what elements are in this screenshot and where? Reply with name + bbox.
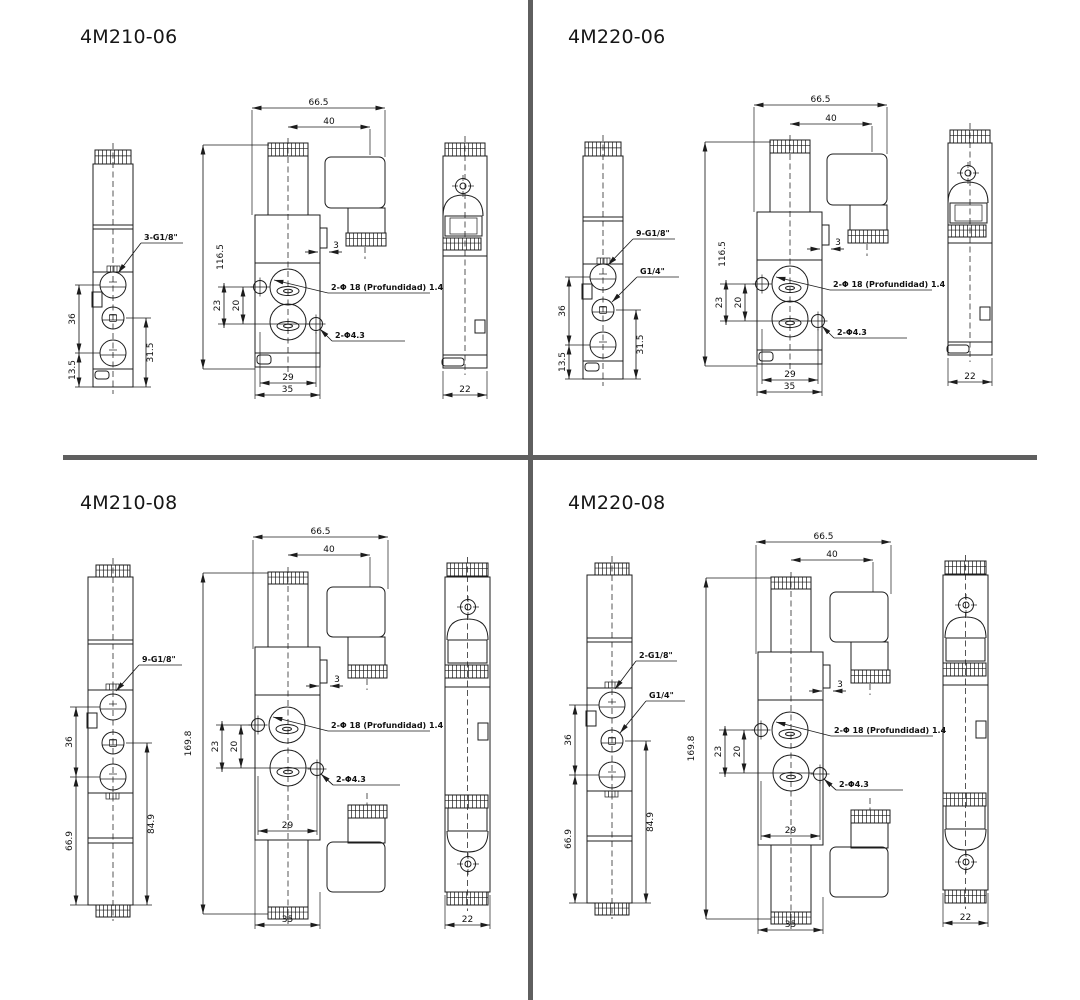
dim-bottom-offset: 66.9 (65, 831, 75, 851)
dim-lower-span: 84.9 (147, 814, 157, 834)
valve-dimensions-sheet: 4M210-06 4M220-06 4M210-08 4M220-08 3613… (0, 0, 1080, 1000)
port-label-2: G1/4" (640, 267, 665, 276)
dim-body-width: 35 (282, 385, 293, 395)
label-mount-holes: 2-Φ4.3 (837, 328, 867, 337)
dim-port-spacing-outer: 23 (213, 300, 223, 311)
dim-body-width: 35 (282, 915, 293, 925)
side-view-4m210-08: 3666.984.99-G1/8" (65, 558, 182, 921)
dim-port-span: 36 (65, 736, 75, 748)
dim-port-span: 36 (68, 313, 78, 325)
dim-mount-hole-span: 29 (282, 373, 294, 383)
dim-pilot-tab: 3 (334, 675, 340, 685)
port-label-1: 2-G1/8" (639, 651, 673, 660)
dim-pilot-tab: 3 (835, 238, 841, 248)
front-view-4m210-06: 66.540323202-Φ 18 (Profundidad) 1.42-Φ4.… (203, 98, 444, 399)
dim-height: 169.8 (687, 735, 697, 761)
port-label-1: 3-G1/8" (144, 233, 178, 242)
dim-lower-span: 31.5 (636, 334, 646, 354)
label-mount-holes: 2-Φ4.3 (336, 775, 366, 784)
dim-depth: 22 (960, 913, 971, 923)
dim-body-width: 35 (785, 920, 796, 930)
port-label-2: G1/4" (649, 691, 674, 700)
dim-depth: 22 (459, 385, 470, 395)
label-mount-holes: 2-Φ4.3 (839, 780, 869, 789)
dim-connector-offset: 40 (825, 114, 837, 124)
dim-port-spacing-inner: 20 (733, 746, 743, 758)
dim-port-spacing-outer: 23 (211, 741, 221, 752)
dim-port-spacing-inner: 20 (232, 300, 242, 312)
technical-drawing: 3613.531.53-G1/8"66.540323202-Φ 18 (Prof… (0, 0, 1080, 1000)
front-view-4m210-08: 66.540323202-Φ 18 (Profundidad) 1.42-Φ4.… (184, 527, 444, 929)
label-counterbore: 2-Φ 18 (Profundidad) 1.4 (331, 721, 444, 730)
dim-pilot-tab: 3 (333, 241, 339, 251)
dim-bottom-offset: 66.9 (564, 829, 574, 849)
dim-overall-width: 66.5 (310, 527, 330, 537)
side-view-4m220-06: 3613.531.59-G1/8"G1/4" (558, 135, 679, 386)
label-counterbore: 2-Φ 18 (Profundidad) 1.4 (834, 726, 947, 735)
dim-overall-width: 66.5 (813, 532, 833, 542)
port-label-1: 9-G1/8" (142, 655, 176, 664)
dim-port-spacing-inner: 20 (230, 741, 240, 753)
dim-height: 169.8 (184, 730, 194, 756)
dim-port-span: 36 (564, 734, 574, 746)
dim-height: 116.5 (718, 241, 728, 267)
front-view-4m220-06: 66.540323202-Φ 18 (Profundidad) 1.42-Φ4.… (705, 95, 946, 396)
dim-pilot-tab: 3 (837, 680, 843, 690)
label-counterbore: 2-Φ 18 (Profundidad) 1.4 (833, 280, 946, 289)
label-mount-holes: 2-Φ4.3 (335, 331, 365, 340)
label-counterbore: 2-Φ 18 (Profundidad) 1.4 (331, 283, 444, 292)
dim-depth: 22 (964, 372, 975, 382)
dim-port-span: 36 (558, 305, 568, 317)
dim-depth: 22 (462, 915, 473, 925)
dim-bottom-offset: 13.5 (68, 360, 78, 380)
end-view-4m210-08: 22 (445, 557, 490, 929)
dim-connector-offset: 40 (826, 550, 838, 560)
port-label-1: 9-G1/8" (636, 229, 670, 238)
dim-connector-offset: 40 (323, 117, 335, 127)
dim-lower-span: 84.9 (646, 812, 656, 832)
dim-body-width: 35 (784, 382, 795, 392)
dim-height: 116.5 (216, 244, 226, 270)
side-view-4m220-08: 3666.984.92-G1/8"G1/4" (564, 556, 685, 919)
dim-port-spacing-outer: 23 (714, 746, 724, 757)
end-view-4m210-06: 22 (442, 136, 487, 399)
end-view-4m220-06: 22 (947, 123, 992, 386)
dim-port-spacing-inner: 20 (734, 297, 744, 309)
end-view-4m220-08: 22 (943, 555, 988, 927)
dim-lower-span: 31.5 (146, 342, 156, 362)
dim-port-spacing-outer: 23 (715, 297, 725, 308)
dim-connector-offset: 40 (323, 545, 335, 555)
side-view-4m210-06: 3613.531.53-G1/8" (68, 143, 183, 394)
dim-bottom-offset: 13.5 (558, 352, 568, 372)
dim-mount-hole-span: 29 (784, 370, 796, 380)
front-view-4m220-08: 66.540323202-Φ 18 (Profundidad) 1.42-Φ4.… (687, 532, 947, 934)
dim-overall-width: 66.5 (308, 98, 328, 108)
dim-overall-width: 66.5 (810, 95, 830, 105)
